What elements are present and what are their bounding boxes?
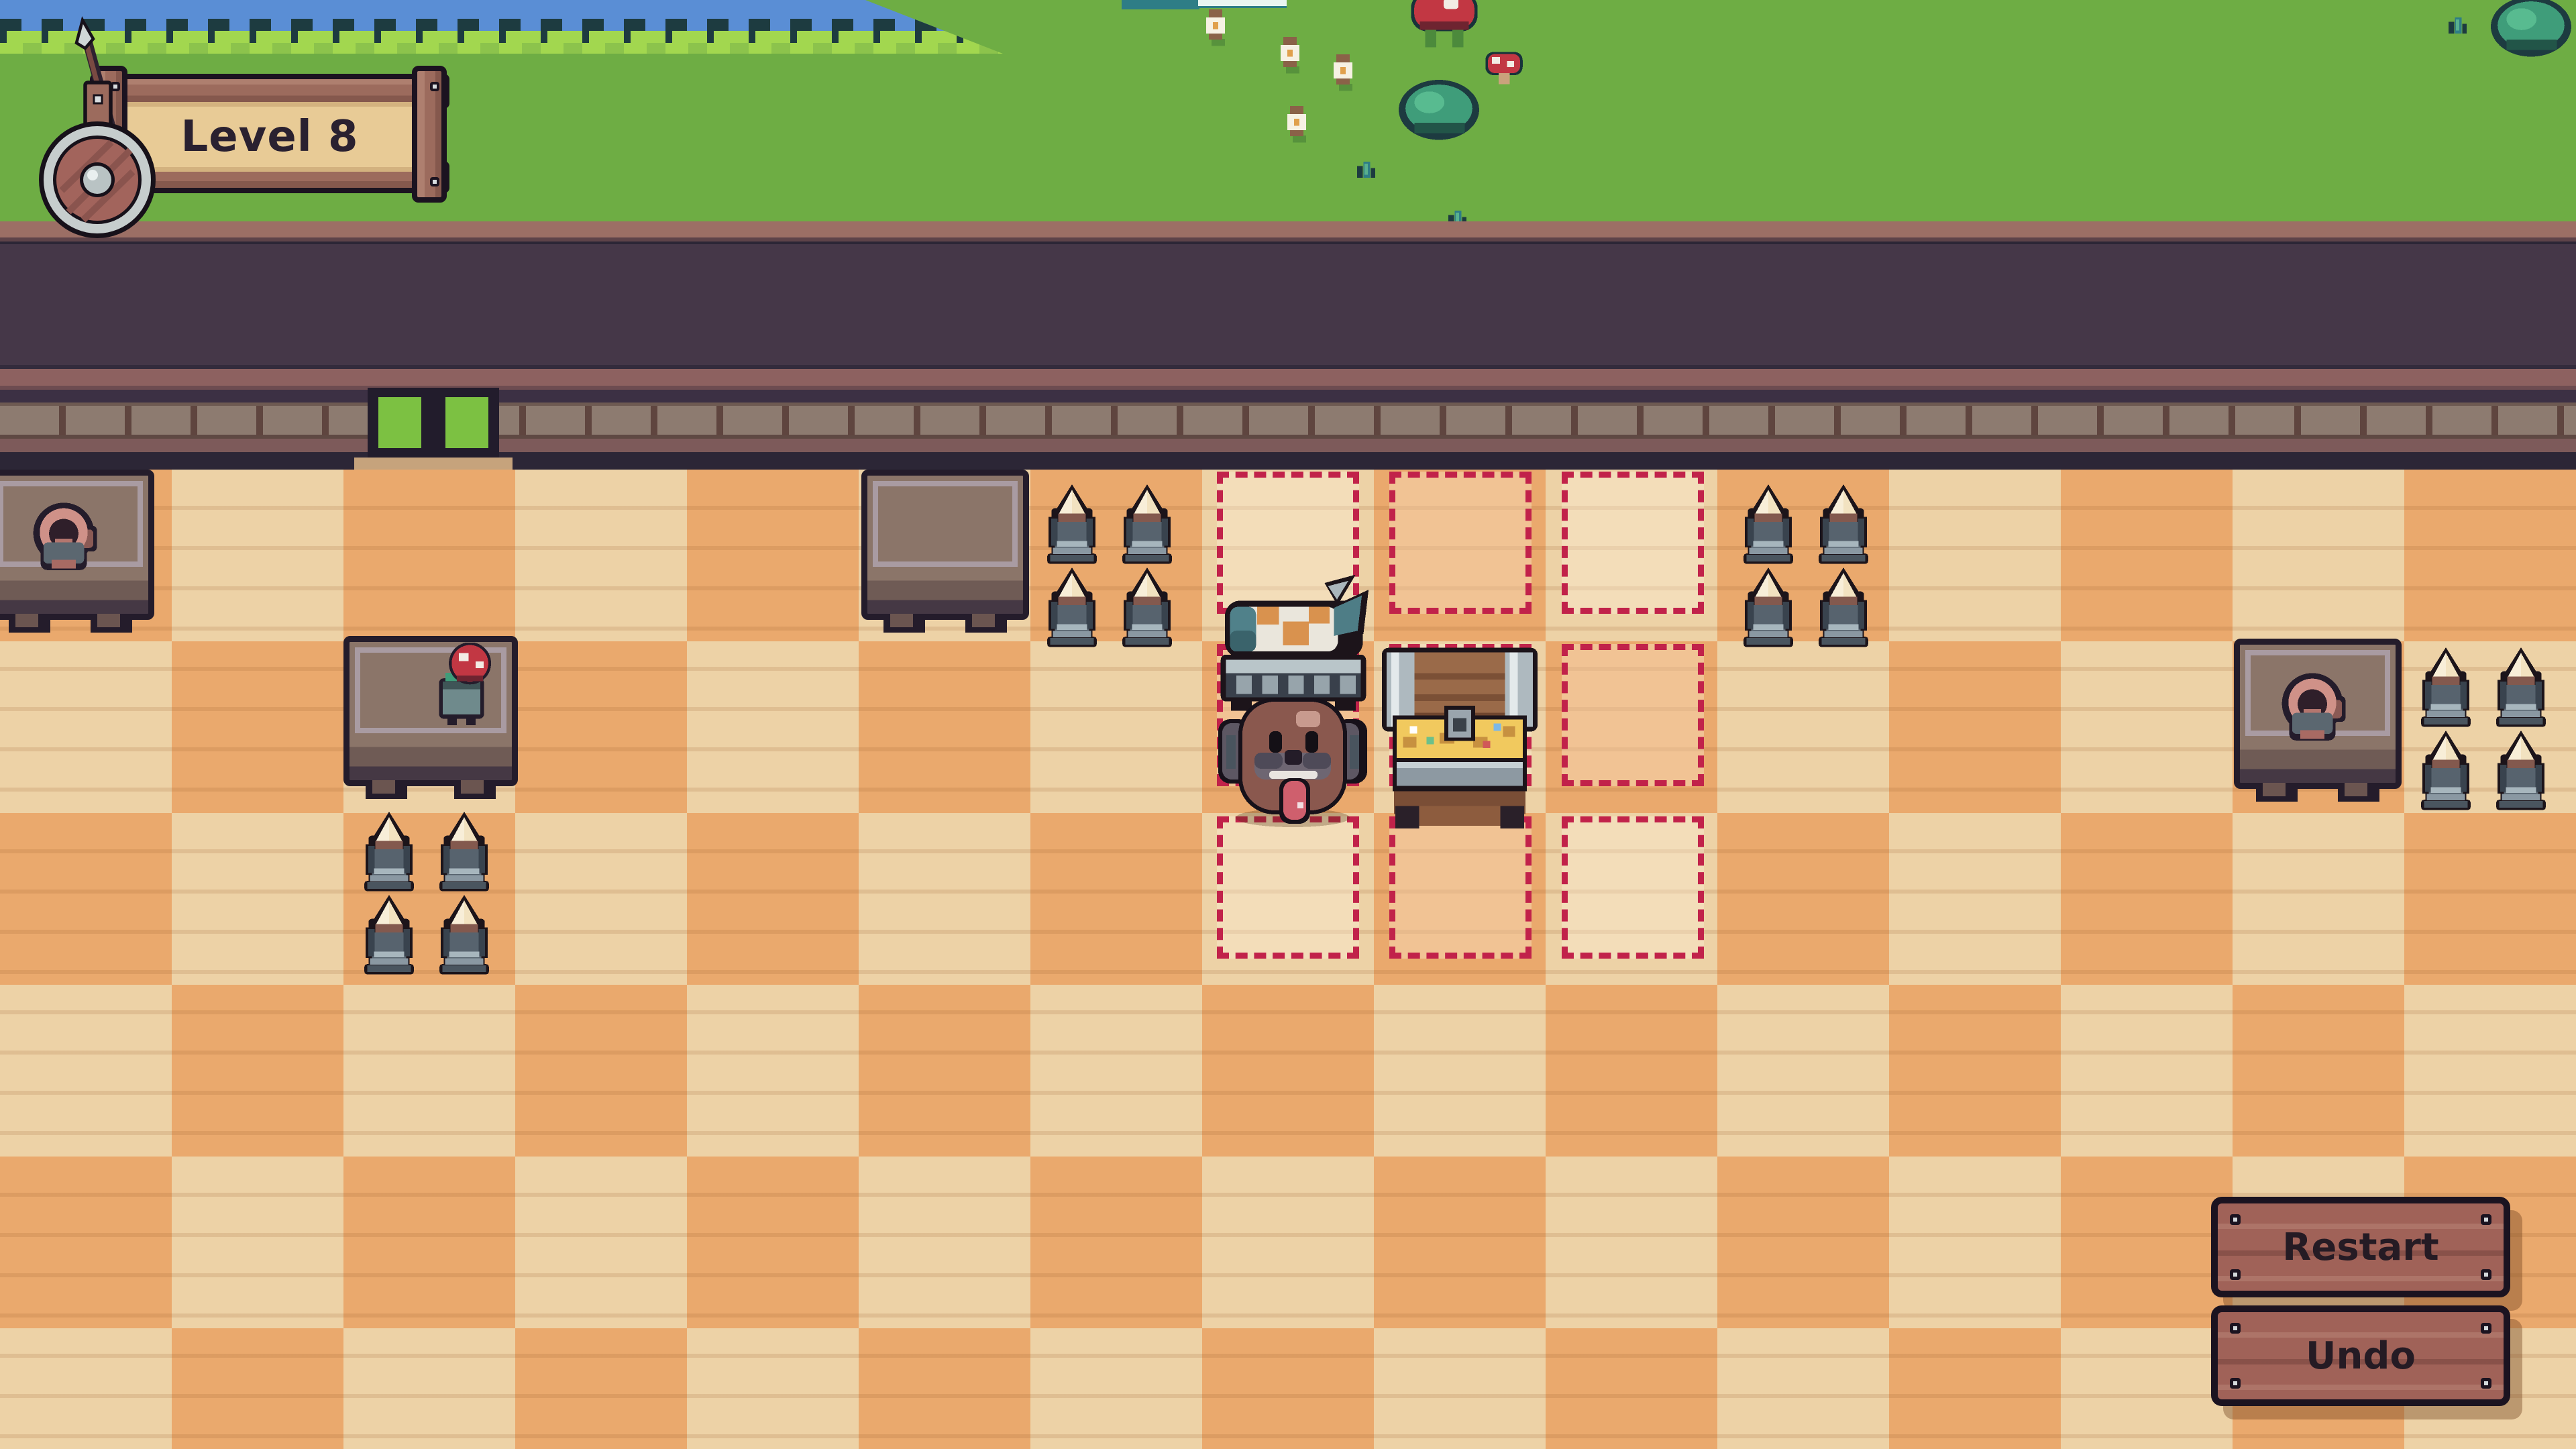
undo-button-label: Undo	[2306, 1334, 2416, 1378]
candle-icon	[1116, 484, 1178, 566]
candle-icon	[358, 895, 420, 977]
restart-button[interactable]: Restart	[2211, 1197, 2510, 1297]
candle-icon	[358, 812, 420, 894]
candle-icon	[1116, 568, 1178, 649]
rivet-icon	[2230, 1214, 2241, 1225]
screw-icon	[430, 82, 439, 91]
rivet-icon	[2481, 1269, 2491, 1280]
rivet-icon	[2481, 1378, 2491, 1389]
rivet-icon	[2481, 1323, 2491, 1334]
candle-icon	[433, 895, 495, 977]
rivet-icon	[2481, 1214, 2491, 1225]
sign-post	[412, 66, 447, 203]
candle-icon	[433, 812, 495, 894]
screw-icon	[430, 177, 439, 186]
candle-icon	[1041, 484, 1103, 566]
rivet-icon	[2230, 1378, 2241, 1389]
rivet-icon	[2230, 1323, 2241, 1334]
candle-icon	[1737, 568, 1799, 649]
candle-icon	[2490, 647, 2552, 729]
candle-icon	[2415, 731, 2477, 812]
restart-button-label: Restart	[2282, 1226, 2438, 1269]
candle-icon	[1813, 568, 1874, 649]
candle-icon	[1813, 484, 1874, 566]
candle-icon	[2490, 731, 2552, 812]
candle-icon	[2415, 647, 2477, 729]
undo-button[interactable]: Undo	[2211, 1305, 2510, 1406]
rivet-icon	[2230, 1269, 2241, 1280]
candle-icon	[1737, 484, 1799, 566]
treasure-chest[interactable]	[1377, 624, 1543, 837]
dog[interactable]	[1216, 682, 1370, 829]
candle-icon	[1041, 568, 1103, 649]
shield-and-spear-icon	[20, 12, 174, 240]
game-viewport: Level 8	[0, 0, 2576, 1449]
level-label: Level 8	[180, 112, 358, 162]
